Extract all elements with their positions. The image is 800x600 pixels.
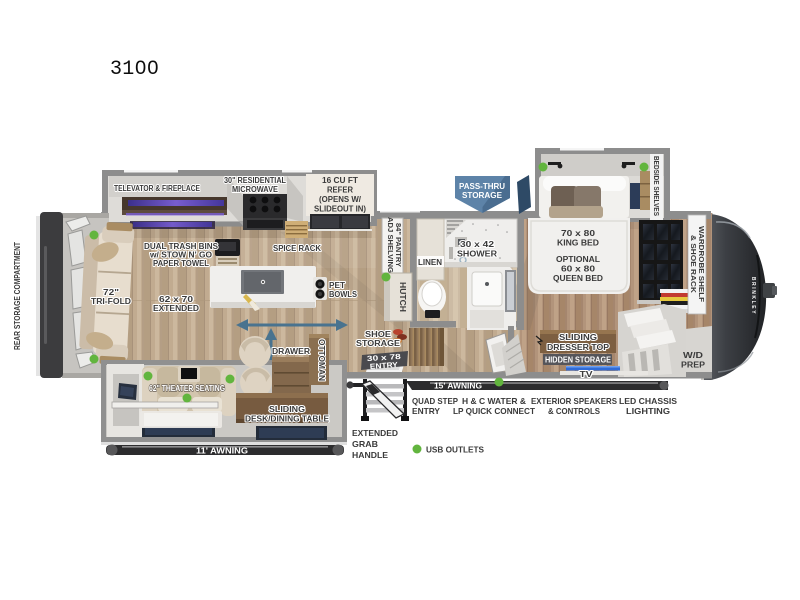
svg-text:QUAD STEP: QUAD STEP	[412, 396, 458, 406]
svg-text:3100: 3100	[110, 58, 159, 81]
svg-text:GRAB: GRAB	[352, 439, 378, 449]
svg-text:SHOE: SHOE	[365, 330, 392, 339]
svg-text:USB OUTLETS: USB OUTLETS	[426, 445, 484, 455]
svg-text:REAR STORAGE COMPARTMENT: REAR STORAGE COMPARTMENT	[13, 242, 22, 350]
svg-text:W/D: W/D	[683, 351, 703, 360]
svg-text:62 x 70: 62 x 70	[159, 295, 194, 304]
svg-text:TELEVATOR & FIREPLACE: TELEVATOR & FIREPLACE	[114, 184, 201, 193]
svg-text:SLIDING: SLIDING	[269, 405, 305, 414]
svg-text:DRESSER TOP: DRESSER TOP	[547, 343, 610, 352]
svg-text:STORAGE: STORAGE	[462, 191, 503, 200]
svg-text:ENTRY: ENTRY	[412, 406, 440, 416]
svg-text:(OPENS W/: (OPENS W/	[319, 195, 362, 204]
svg-text:DESK/DINING TABLE: DESK/DINING TABLE	[245, 415, 330, 424]
svg-text:LED CHASSIS: LED CHASSIS	[619, 396, 677, 406]
svg-text:QUEEN BED: QUEEN BED	[553, 274, 603, 283]
svg-text:LINEN: LINEN	[418, 258, 442, 267]
svg-text:15' AWNING: 15' AWNING	[434, 382, 482, 391]
svg-text:PET: PET	[329, 281, 345, 290]
svg-text:TRI-FOLD: TRI-FOLD	[91, 297, 131, 306]
svg-text:BOWLS: BOWLS	[329, 290, 358, 299]
svg-text:SLIDEOUT IN): SLIDEOUT IN)	[314, 205, 366, 214]
svg-text:H & C WATER &: H & C WATER &	[462, 396, 526, 406]
svg-text:& CONTROLS: & CONTROLS	[548, 406, 600, 416]
svg-text:LP QUICK CONNECT: LP QUICK CONNECT	[453, 406, 536, 416]
svg-text:16 CU FT: 16 CU FT	[322, 176, 358, 185]
svg-text:70 x 80: 70 x 80	[561, 229, 596, 238]
svg-text:SPICE RACK: SPICE RACK	[273, 244, 321, 253]
svg-text:SLIDING: SLIDING	[559, 333, 597, 342]
svg-text:LIGHTING: LIGHTING	[626, 406, 670, 416]
svg-text:OPTIONAL: OPTIONAL	[556, 255, 600, 264]
svg-text:72": 72"	[103, 288, 119, 297]
svg-text:HIDDEN STORAGE: HIDDEN STORAGE	[545, 356, 612, 365]
svg-text:84" PANTRY: 84" PANTRY	[394, 223, 403, 267]
svg-text:TV: TV	[580, 370, 594, 379]
svg-text:REFER: REFER	[327, 186, 353, 195]
svg-text:BRINKLEY: BRINKLEY	[750, 277, 756, 315]
svg-text:PREP: PREP	[681, 361, 706, 370]
svg-text:PASS-THRU: PASS-THRU	[459, 182, 505, 191]
svg-text:DRAWER: DRAWER	[272, 347, 310, 356]
svg-text:60 x 80: 60 x 80	[561, 265, 596, 274]
svg-text:30 x 42: 30 x 42	[460, 240, 495, 249]
svg-text:ADJ SHELVING: ADJ SHELVING	[386, 217, 395, 273]
svg-text:11' AWNING: 11' AWNING	[196, 447, 248, 456]
svg-text:62" THEATER SEATING: 62" THEATER SEATING	[149, 384, 225, 393]
svg-text:KING BED: KING BED	[557, 239, 599, 248]
svg-text:EXTERIOR SPEAKERS: EXTERIOR SPEAKERS	[531, 396, 617, 406]
svg-text:& SHOE RACK: & SHOE RACK	[689, 235, 698, 294]
svg-text:OTTOMAN: OTTOMAN	[317, 339, 326, 381]
svg-text:PAPER TOWEL: PAPER TOWEL	[153, 259, 209, 268]
svg-text:STORAGE: STORAGE	[356, 339, 401, 348]
svg-text:EXTENDED: EXTENDED	[153, 304, 199, 313]
svg-text:HUTCH: HUTCH	[398, 282, 407, 312]
svg-text:BEDSIDE SHELVES: BEDSIDE SHELVES	[652, 156, 661, 216]
svg-text:MICROWAVE: MICROWAVE	[232, 185, 279, 194]
svg-text:SHOWER: SHOWER	[457, 250, 497, 259]
svg-text:HANDLE: HANDLE	[352, 450, 388, 460]
svg-text:WARDROBE SHELF: WARDROBE SHELF	[697, 226, 706, 302]
svg-text:EXTENDED: EXTENDED	[352, 428, 398, 438]
svg-text:30" RESIDENTIAL: 30" RESIDENTIAL	[224, 176, 286, 185]
